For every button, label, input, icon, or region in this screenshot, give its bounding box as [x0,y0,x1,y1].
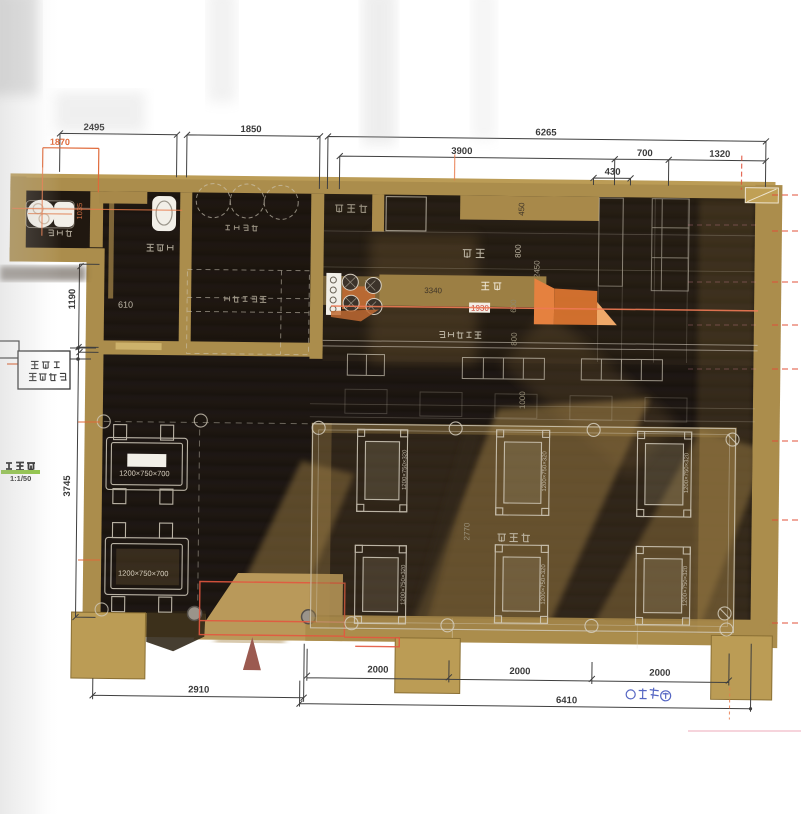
svg-text:1200×750×320: 1200×750×320 [401,564,407,605]
svg-text:6410: 6410 [556,695,577,706]
svg-text:3340: 3340 [424,286,442,295]
svg-text:2000: 2000 [367,664,388,675]
svg-text:2000: 2000 [649,668,670,679]
svg-text:1200×750×700: 1200×750×700 [119,469,170,479]
svg-text:6265: 6265 [535,127,557,138]
svg-text:2770: 2770 [462,522,471,540]
svg-text:1200×750×320: 1200×750×320 [542,451,548,492]
svg-text:700: 700 [637,148,653,159]
svg-text:1850: 1850 [240,124,261,135]
svg-text:2000: 2000 [509,666,530,677]
svg-text:1000: 1000 [518,391,527,409]
svg-text:1200×750×320: 1200×750×320 [541,564,547,605]
svg-text:450: 450 [517,202,526,216]
svg-text:1035: 1035 [75,203,84,220]
svg-text:1200×750×320: 1200×750×320 [684,452,690,493]
svg-text:600: 600 [509,299,518,313]
svg-text:1200×750×700: 1200×750×700 [118,569,169,579]
svg-text:800: 800 [510,332,519,346]
svg-text:1200×750×320: 1200×750×320 [683,565,689,606]
svg-text:2910: 2910 [188,684,209,695]
svg-text:3745: 3745 [62,475,73,497]
svg-text:610: 610 [118,300,133,310]
svg-text:800: 800 [514,244,523,258]
svg-text:2450: 2450 [532,260,541,278]
svg-text:1200×750×320: 1200×750×320 [402,449,408,490]
svg-text:1320: 1320 [709,149,730,160]
svg-text:1190: 1190 [67,289,78,310]
svg-text:430: 430 [605,167,621,178]
